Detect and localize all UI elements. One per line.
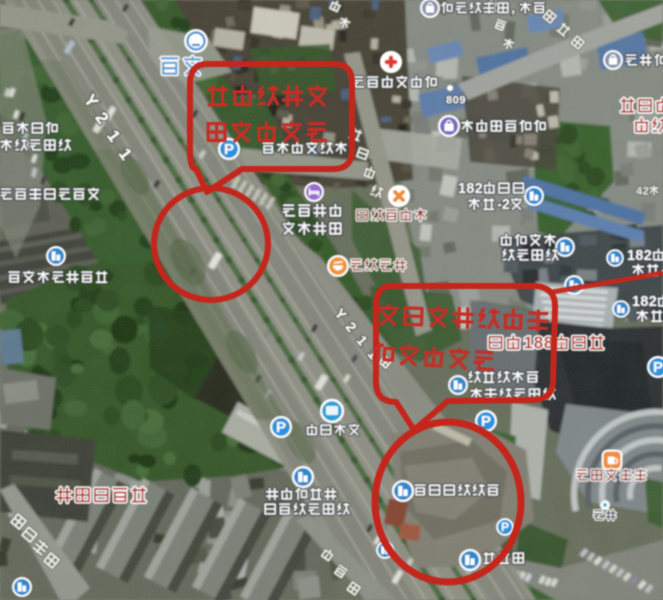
svg-text:P: P <box>653 359 663 376</box>
svg-text:1: 1 <box>632 294 640 310</box>
svg-text:2: 2 <box>475 181 483 197</box>
svg-text:2: 2 <box>643 186 649 198</box>
svg-text:1: 1 <box>523 333 533 353</box>
svg-text:8: 8 <box>635 248 643 264</box>
svg-text:8: 8 <box>466 181 474 197</box>
svg-text:8: 8 <box>640 294 648 310</box>
svg-text:2: 2 <box>502 197 510 213</box>
svg-text:2: 2 <box>644 248 652 264</box>
svg-text:8: 8 <box>534 333 544 353</box>
svg-text:9: 9 <box>459 95 465 107</box>
svg-text:8: 8 <box>446 95 452 107</box>
svg-text:P: P <box>276 419 286 436</box>
svg-text:,: , <box>511 1 515 16</box>
svg-text:1: 1 <box>458 181 466 197</box>
svg-text:P: P <box>501 520 509 534</box>
svg-text:1: 1 <box>627 248 635 264</box>
svg-text:P: P <box>224 141 234 158</box>
svg-text:2: 2 <box>649 294 657 310</box>
svg-text:0: 0 <box>453 95 459 107</box>
